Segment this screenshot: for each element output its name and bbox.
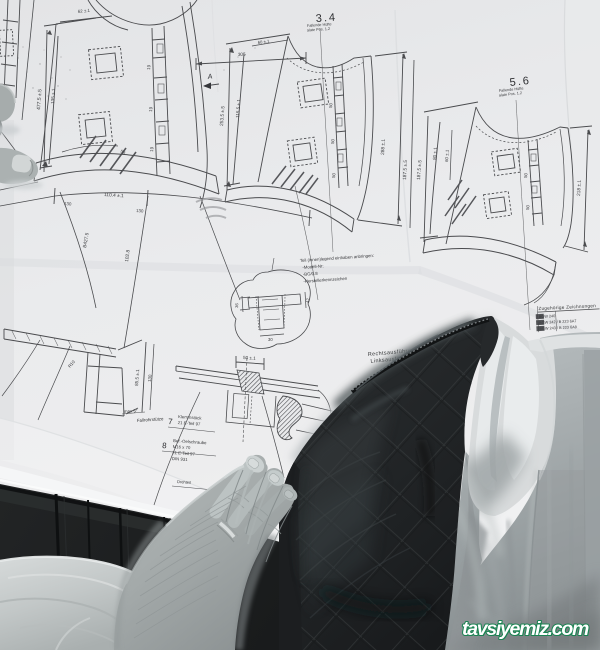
svg-text:19: 19 [148, 106, 153, 112]
svg-text:19: 19 [146, 64, 151, 70]
svg-text:305: 305 [238, 52, 246, 57]
svg-text:80 ±.1: 80 ±.1 [432, 147, 438, 161]
svg-text:Drehteil: Drehteil [177, 479, 191, 485]
svg-text:218 ±.1: 218 ±.1 [576, 180, 583, 197]
svg-text:130: 130 [147, 374, 153, 382]
svg-text:130: 130 [136, 208, 144, 214]
svg-text:30: 30 [268, 337, 273, 342]
svg-text:19: 19 [149, 146, 154, 152]
svg-text:288 ±.1: 288 ±.1 [380, 139, 387, 156]
svg-text:50 ±.1: 50 ±.1 [243, 355, 257, 361]
svg-text:187.5 ±.5: 187.5 ±.5 [402, 160, 409, 181]
svg-text:60 ±.1: 60 ±.1 [444, 149, 450, 162]
svg-text:tavsiyemiz.com: tavsiyemiz.com [462, 618, 589, 640]
